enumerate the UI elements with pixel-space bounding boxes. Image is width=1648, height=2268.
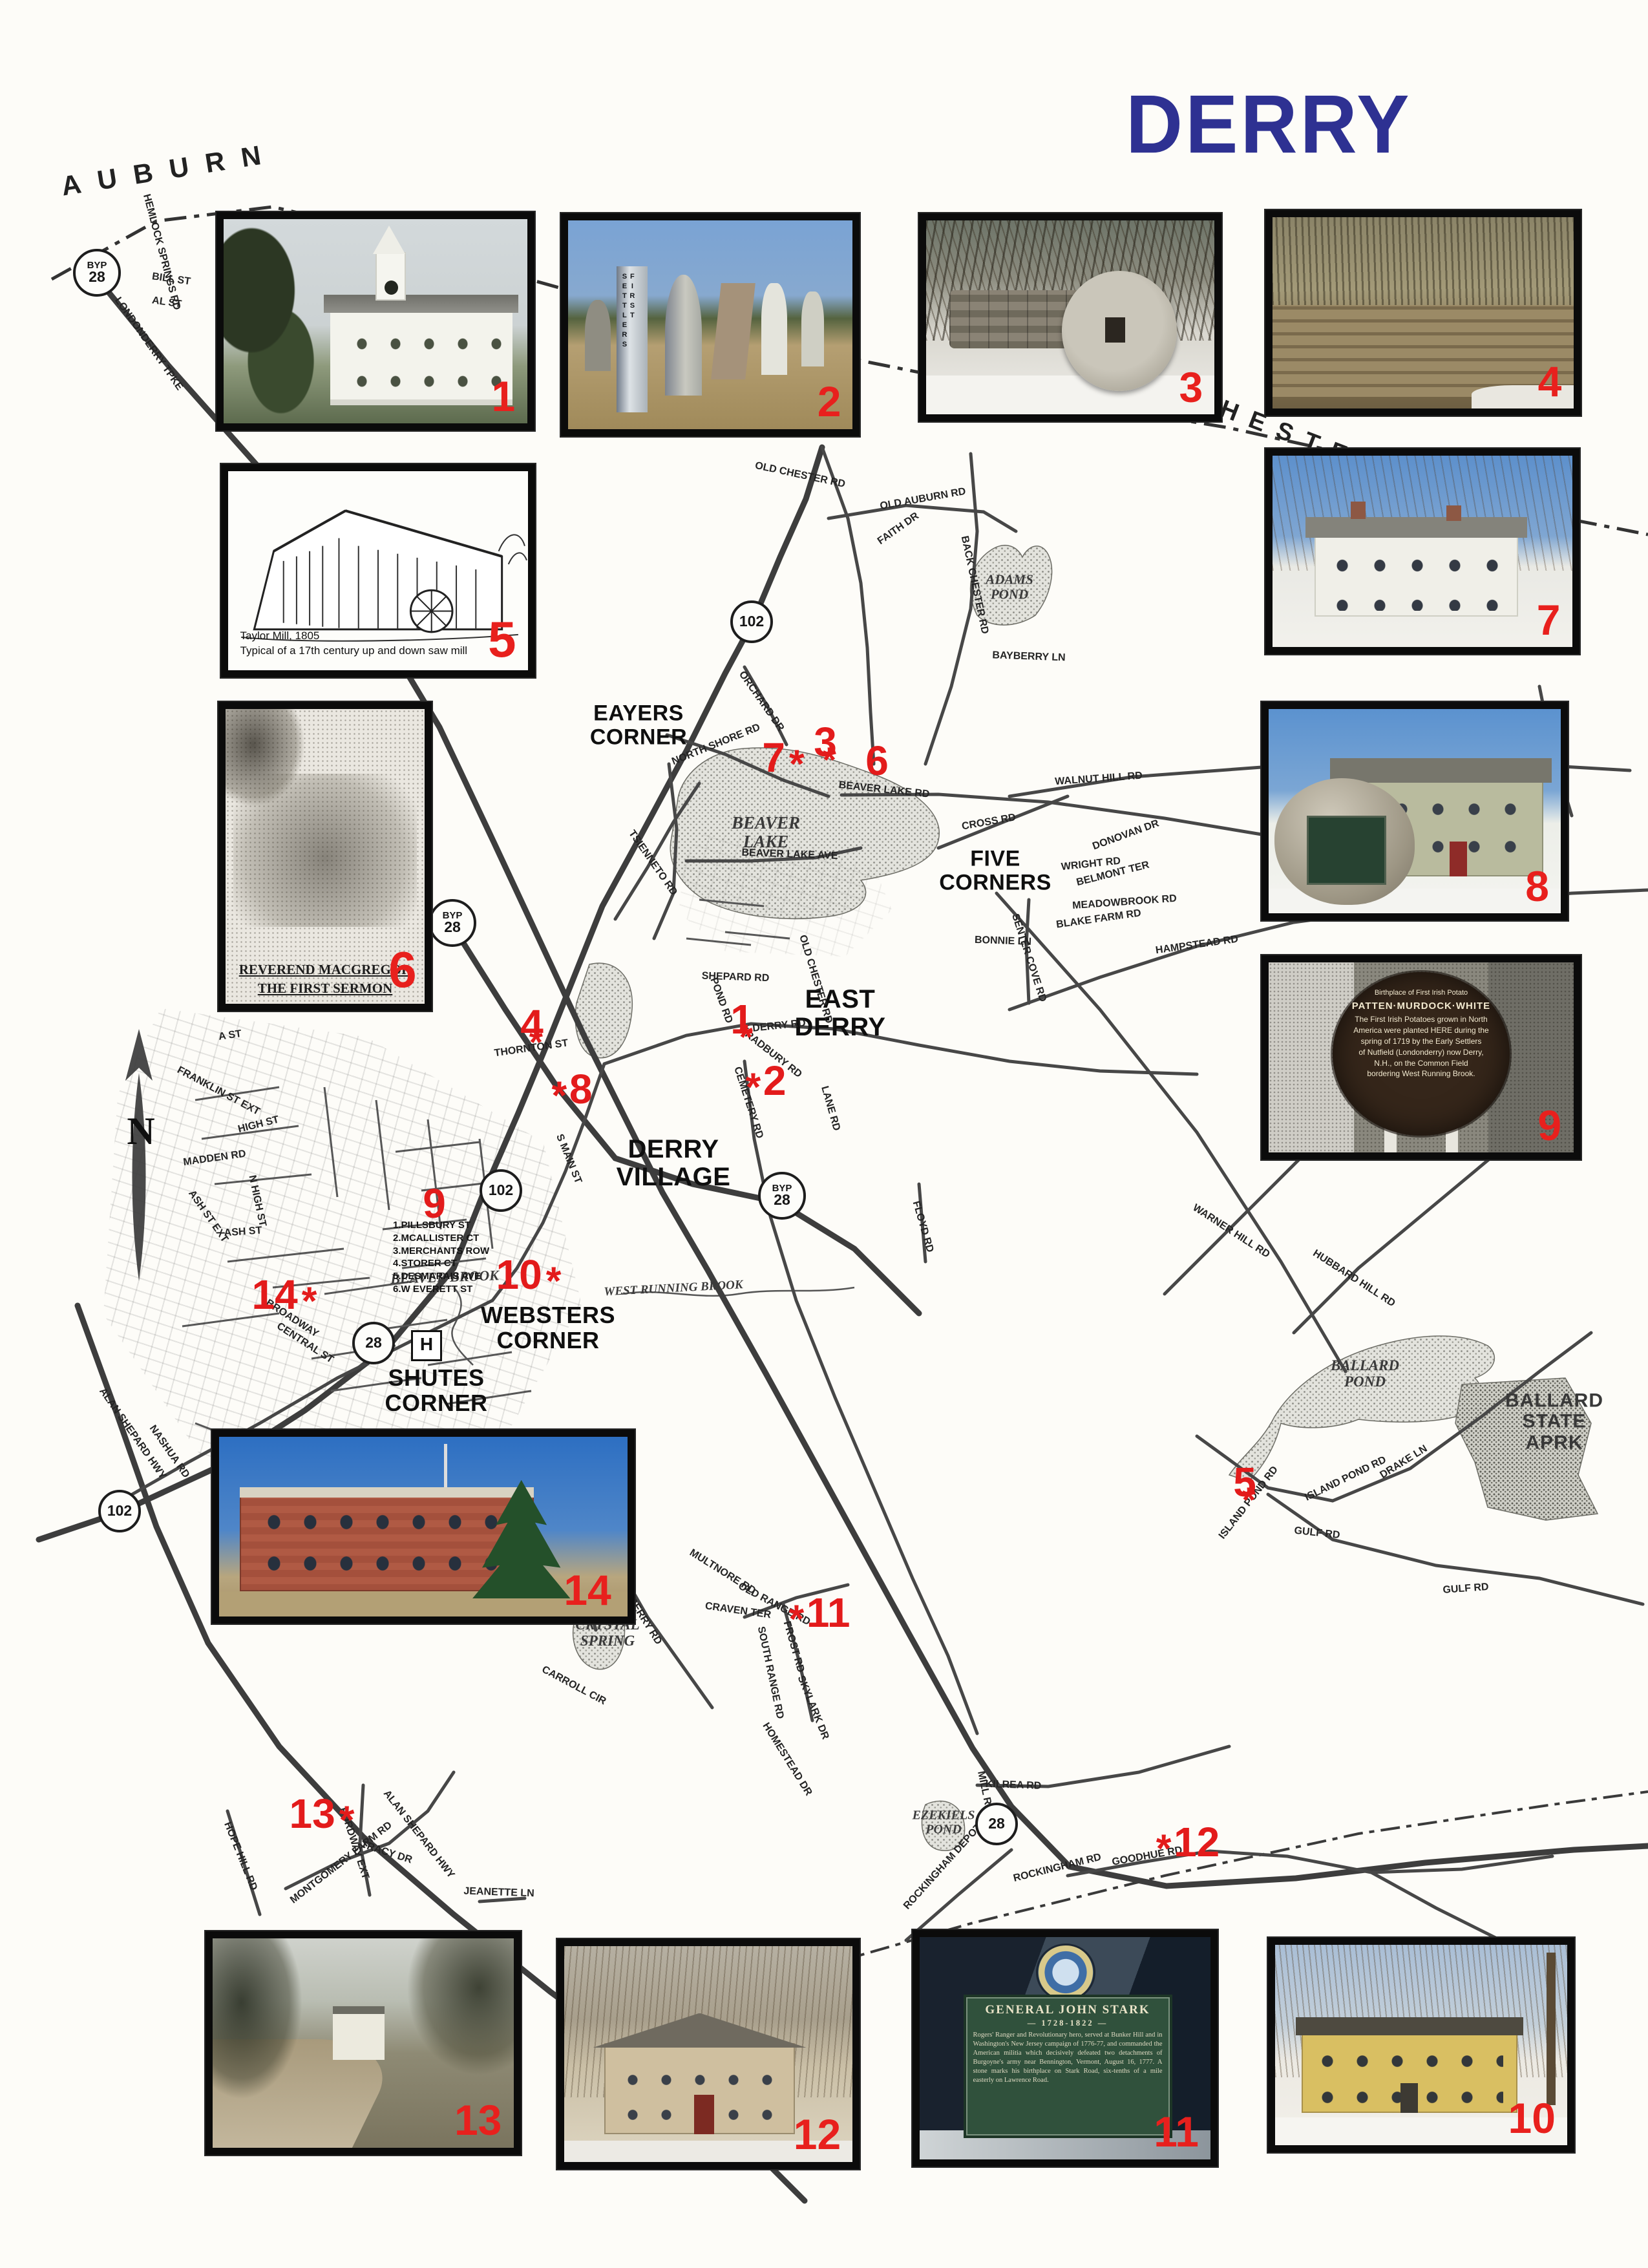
photo-number: 11 [1154,2110,1199,2153]
compass-north-letter: N [127,1112,154,1150]
photo-scene-9: Birthplace of First Irish PotatoPATTEN·M… [1269,962,1574,1152]
photo-number: 4 [1538,360,1562,403]
marker-asterisk: * [789,745,805,784]
marker-asterisk: * [302,1282,317,1321]
field-stone-wall [1273,305,1574,397]
photo-caption: Taylor Mill, 1805Typical of a 17th centu… [240,629,468,659]
photo-scene-1 [224,219,527,423]
photo-number: 13 [454,2099,502,2141]
photo-number: 2 [818,380,841,423]
photo-scene-7 [1273,456,1572,647]
route-shield-byp-28: BYP28 [73,249,121,297]
hospital-symbol: H [411,1330,442,1361]
marker-asterisk: * [739,1020,753,1055]
map-label-shutes-corner: SHUTESCORNER [385,1366,487,1416]
round-potato-sign: Birthplace of First Irish PotatoPATTEN·M… [1333,972,1510,1136]
page-title: DERRY [1126,77,1412,172]
house-roof [1296,2017,1524,2035]
photo-scene-2: FIRST SETTLERS [568,220,852,429]
map-label-east-derry: EASTDERRY [794,986,885,1041]
map-marker-13: 13* [290,1793,355,1834]
photo-inset-14: 14 [212,1430,635,1624]
roadside-trees [213,1938,321,2148]
marker-asterisk: * [339,1801,355,1840]
gravestone-inscription: FIRST SETTLERS [620,273,636,407]
gravestone [761,283,787,375]
photo-inset-1: 1 [217,212,534,430]
photo-number: 10 [1508,2097,1556,2139]
photo-number: 8 [1525,865,1549,907]
photo-inset-13: 13 [206,1931,521,2155]
map-label-bonnie-ln: BONNIE LN [975,935,1032,948]
map-marker-2: *2 [746,1060,787,1101]
map-marker-12: *12 [1156,1821,1220,1863]
house-roof [1305,517,1527,538]
snow-ground [926,376,1214,414]
building-windows [256,1501,509,1584]
marker-dates: — 1728-1822 — [966,2018,1170,2028]
tree-trunk [1547,1953,1556,2105]
map-label-adams-pond: ADAMSPOND [986,572,1033,601]
photo-number: 1 [491,375,515,418]
photo-number: 9 [1537,1104,1561,1147]
map-marker-4: 4* [520,1004,544,1045]
map-marker-3: 3* [814,721,837,763]
marker-asterisk: * [823,743,836,778]
sign-text: Birthplace of First Irish PotatoPATTEN·M… [1345,988,1497,1122]
tree-shape [224,219,327,423]
farmhouse [333,2014,384,2060]
flag-pole [444,1444,447,1487]
marker-asterisk: * [789,1600,805,1639]
map-label-five-corners: FIVECORNERS [939,847,1051,894]
route-shield-102: 102 [480,1169,522,1212]
chimney [1351,502,1366,519]
photo-scene-4 [1273,217,1574,408]
photo-inset-2: FIRST SETTLERS2 [561,213,860,436]
roadside-trees [387,1938,514,2119]
house-roof [1330,758,1552,783]
map-marker-14: 14* [252,1274,317,1315]
gravestone [585,300,611,371]
photo-number: 5 [488,614,516,664]
photo-number: 7 [1537,599,1561,641]
nh-state-seal [1036,1944,1095,2001]
photo-inset-11: GENERAL JOHN STARK— 1728-1822 —Rogers' R… [913,1930,1218,2167]
map-label-ballard-pond: BALLARDPOND [1331,1358,1399,1390]
chimney [1446,505,1461,521]
engraving-crowd [233,774,416,927]
route-shield-28: 28 [975,1803,1018,1845]
photo-inset-8: 8 [1262,702,1568,920]
photo-number: 6 [388,944,416,995]
marker-body-text: Rogers' Ranger and Revolutionary hero, s… [966,2028,1170,2085]
marker-asterisk: * [1242,1483,1256,1518]
photo-scene-8 [1269,709,1561,913]
scanned-map-page: DERRY [0,0,1648,2268]
compass-north-arrow [125,1029,153,1281]
map-label-beaver-lake: BEAVERLAKE [732,814,800,851]
map-marker-5: 5* [1233,1461,1256,1503]
gravestone [665,275,702,396]
house-windows [1324,546,1510,611]
street-index-list: 1.PILLSBURY ST2.MCALLISTER CT3.MERCHANTS… [393,1219,489,1296]
map-label-kilrea-rd: KILREA RD [985,1779,1041,1792]
map-marker-9: 9 [423,1183,446,1224]
map-marker-11: *11 [789,1592,850,1633]
map-marker-10: 10* [496,1254,562,1295]
marker-asterisk: * [552,1076,567,1116]
gravestone [801,291,824,366]
church-roof [324,295,518,313]
photo-inset-5: Taylor Mill, 1805Typical of a 17th centu… [221,464,535,677]
photo-inset-7: 7 [1265,449,1579,654]
route-shield-byp-28: BYP28 [428,899,476,947]
marker-asterisk: * [746,1068,761,1107]
front-door [1400,2083,1418,2114]
bronze-plaque [1307,816,1387,885]
photo-inset-4: 4 [1265,210,1581,416]
photo-inset-10: 10 [1268,1938,1574,2152]
map-label-derry-village: DERRYVILLAGE [617,1136,731,1191]
route-shield-byp-28: BYP28 [758,1172,806,1220]
historical-marker-plaque: GENERAL JOHN STARK— 1728-1822 —Rogers' R… [964,1995,1172,2137]
photo-inset-6: REVEREND MACGREGORTHE FIRST SERMON6 [218,702,432,1011]
marker-asterisk: * [1156,1829,1172,1869]
millstone-hole [1105,317,1125,343]
map-label-websters-corner: WEBSTERSCORNER [481,1303,615,1353]
photo-scene-3 [926,220,1214,414]
red-door [694,2095,714,2134]
marker-title: GENERAL JOHN STARK [966,2002,1170,2018]
red-door [1450,842,1467,876]
church-windows [345,325,503,399]
photo-number: 3 [1179,366,1203,408]
photo-inset-3: 3 [919,213,1221,421]
map-marker-6: 6 [865,740,889,781]
photo-inset-9: Birthplace of First Irish PotatoPATTEN·M… [1262,955,1581,1160]
route-shield-28: 28 [352,1322,395,1364]
marker-asterisk: * [546,1262,562,1301]
photo-number: 12 [794,2113,841,2156]
route-shield-102: 102 [730,600,773,643]
map-label-eayers-corner: EAYERSCORNER [590,701,687,748]
map-label-ballard-state-aprk: BALLARDSTATEAPRK [1505,1390,1603,1453]
church-spire [373,226,405,254]
route-shield-102: 102 [98,1490,141,1532]
marker-asterisk: * [529,1025,543,1060]
gravestone [711,283,755,379]
map-marker-8: *8 [552,1068,593,1110]
photo-scene-5: Taylor Mill, 1805Typical of a 17th centu… [228,471,528,670]
map-marker-7: 7* [762,737,804,778]
map-marker-1: 1* [730,999,754,1040]
photo-number: 14 [564,1569,611,1611]
photo-inset-12: 12 [557,1939,860,2169]
steeple-clock [385,281,398,295]
